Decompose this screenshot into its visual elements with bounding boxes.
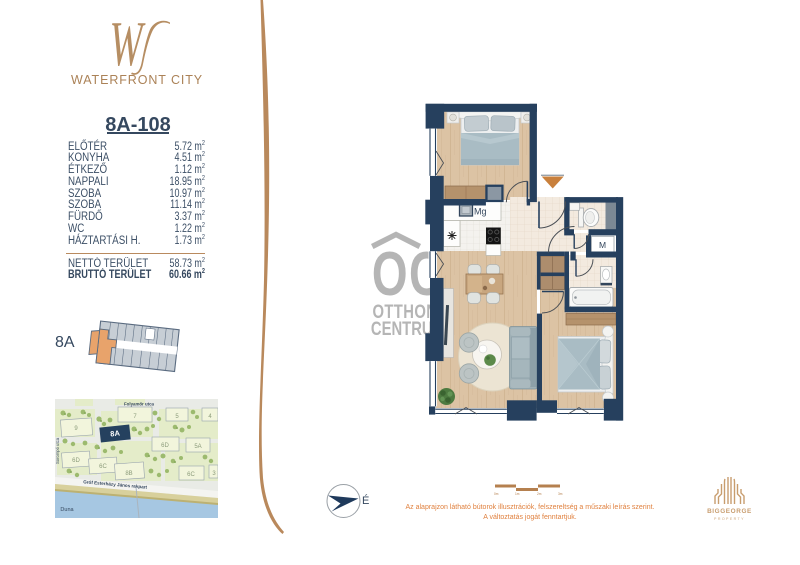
svg-text:PROPERTY: PROPERTY (714, 517, 745, 521)
svg-text:BIGGEORGE: BIGGEORGE (707, 508, 752, 515)
svg-text:Mg: Mg (474, 207, 487, 217)
svg-text:3m: 3m (558, 492, 563, 496)
svg-text:M: M (599, 240, 606, 250)
svg-text:1m: 1m (515, 492, 520, 496)
svg-text:2m: 2m (537, 492, 542, 496)
svg-text:0m: 0m (494, 492, 499, 496)
svg-text:É: É (362, 494, 369, 507)
